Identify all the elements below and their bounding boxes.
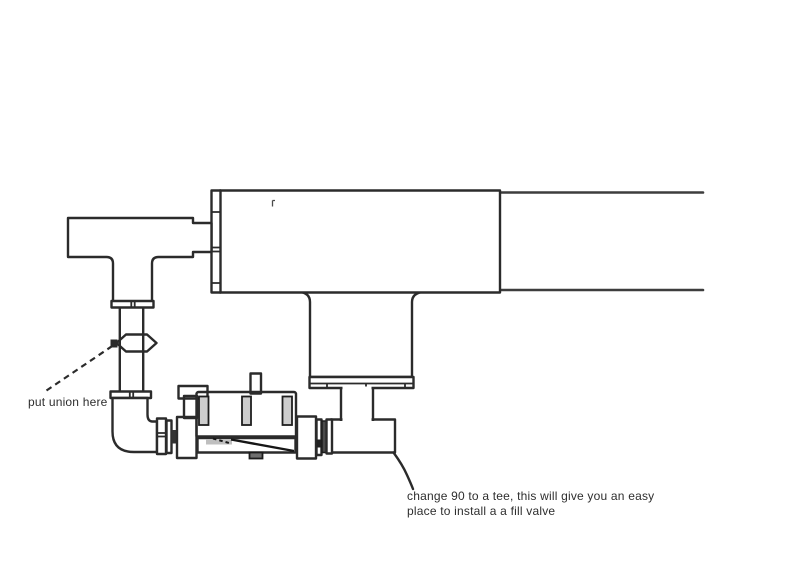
pump-slot-left xyxy=(199,397,209,426)
pump-volute-diagonal xyxy=(231,440,294,452)
right-coupling-ring-1 xyxy=(317,420,322,456)
tee-fitting xyxy=(68,218,212,302)
discharge-pipe xyxy=(331,420,395,453)
tee-note-line2: place to install a a fill valve xyxy=(407,504,555,518)
tank-funnel xyxy=(299,292,424,378)
tee-socket-rim xyxy=(112,301,154,308)
union-leader-line xyxy=(47,344,117,391)
tee-leader-line xyxy=(394,453,414,490)
diagram-canvas: put union here change 90 to a tee, this … xyxy=(0,0,800,573)
union-fitting xyxy=(117,335,157,352)
right-coupling-dark-square xyxy=(317,440,323,448)
tank-mount-strip xyxy=(212,191,221,293)
pump-slot-right xyxy=(283,397,293,426)
right-coupling-ring-3 xyxy=(327,420,333,454)
left-coupling-ring xyxy=(167,421,172,454)
pump-top-plug xyxy=(251,374,262,394)
tank-body xyxy=(220,191,500,293)
tank-neck-fill xyxy=(343,387,372,424)
pump-right-union-nut xyxy=(297,417,316,459)
elbow-fitting xyxy=(113,398,158,452)
pump-left-union-nut xyxy=(177,417,197,458)
plumbing-diagram xyxy=(0,0,800,573)
tank-flange xyxy=(310,377,414,388)
pump-slot-center xyxy=(242,397,251,426)
pump-bottom-tab xyxy=(250,453,263,459)
union-note-label: put union here xyxy=(28,395,108,410)
tee-note-label: change 90 to a tee, this will give you a… xyxy=(407,489,654,519)
tee-note-line1: change 90 to a tee, this will give you a… xyxy=(407,489,654,503)
